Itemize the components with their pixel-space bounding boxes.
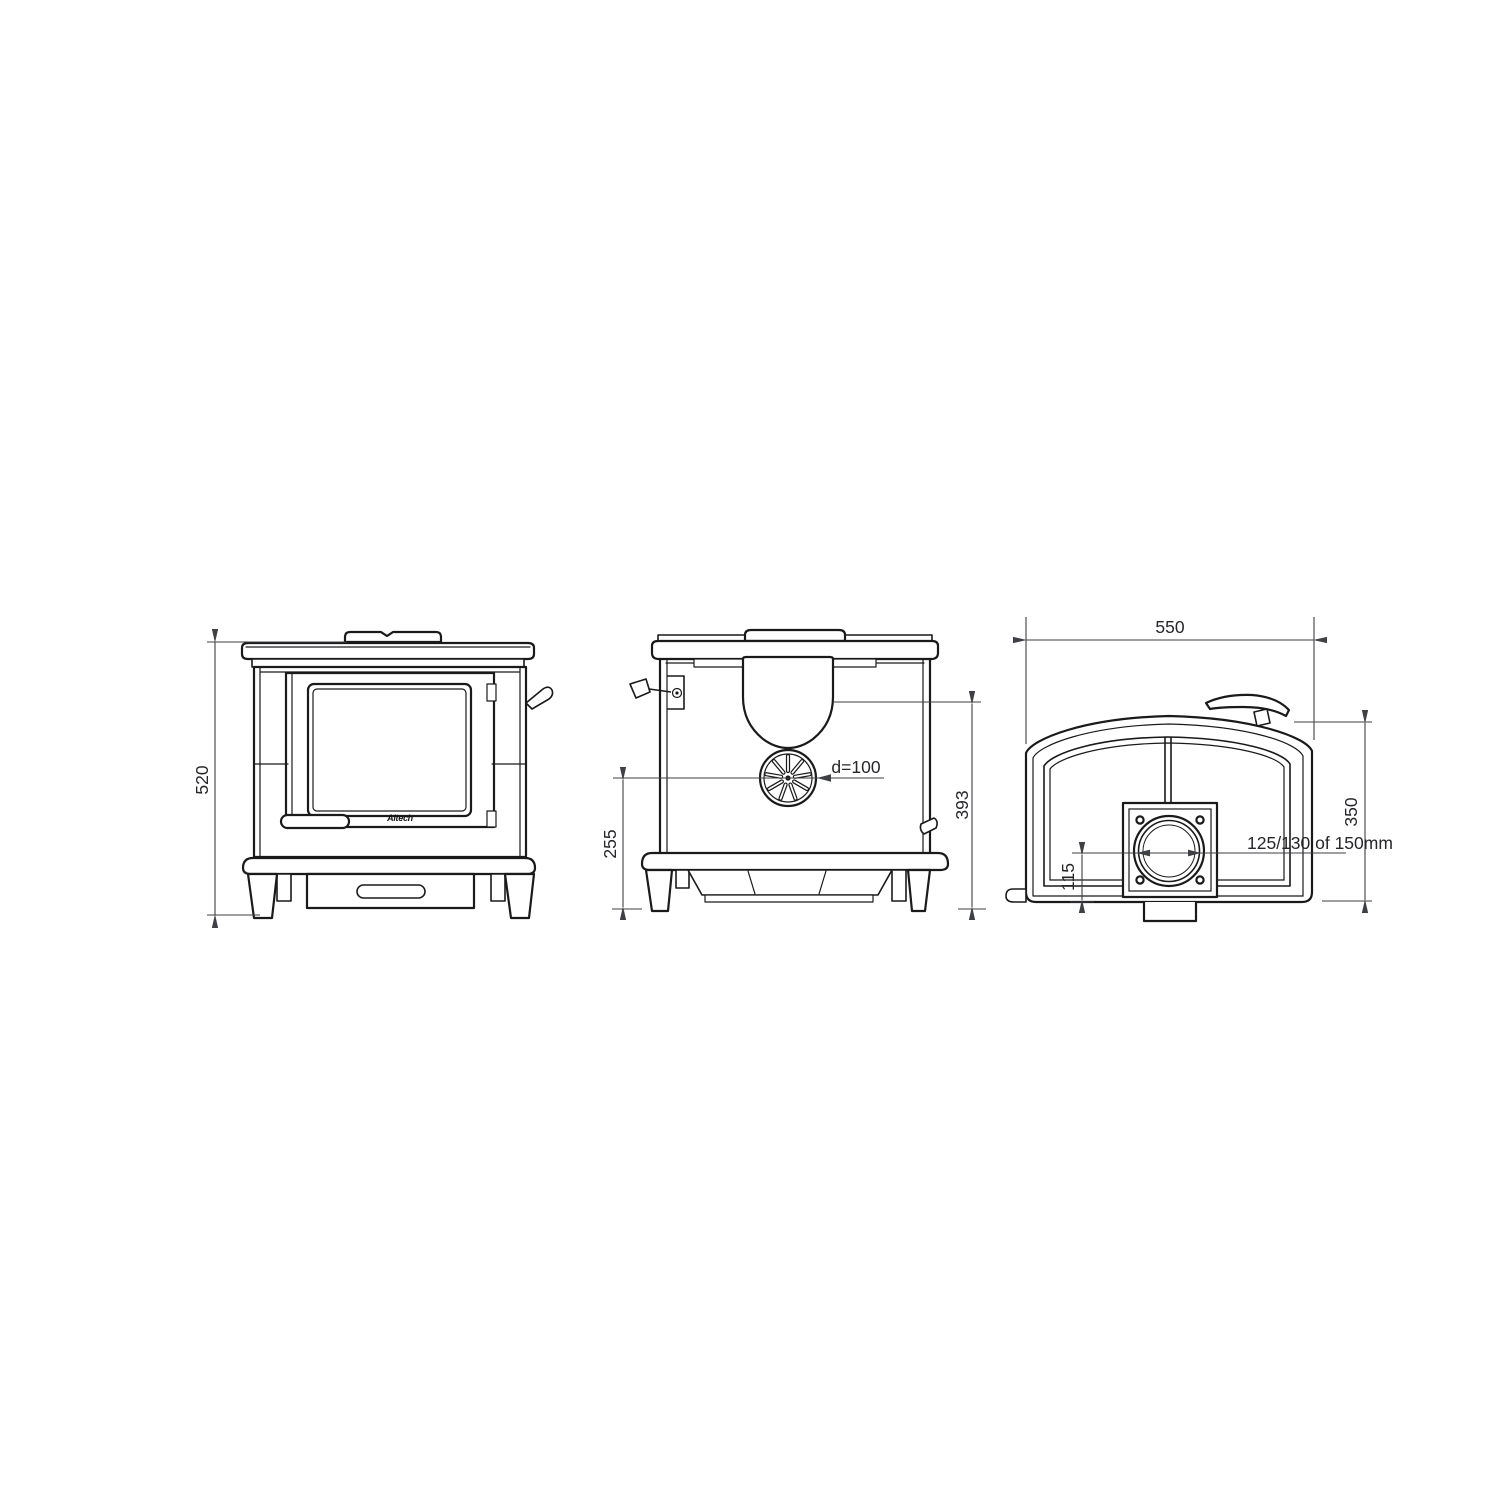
rear-foot	[1006, 889, 1026, 902]
air-control-knob	[526, 687, 553, 709]
dim-255: 255	[600, 780, 642, 909]
top-cap	[745, 630, 845, 641]
baffle-bell-chamber	[743, 657, 833, 748]
damper-handle-blade	[1206, 695, 1289, 716]
dim-label-550: 550	[1155, 617, 1184, 637]
door-hinge-bottom	[487, 811, 496, 827]
bolt-hole-tr	[1196, 816, 1203, 823]
bolt-hole-br	[1196, 876, 1203, 883]
leg-bracket-right	[491, 874, 505, 901]
leg-tab-right	[892, 870, 906, 901]
dim-label-255: 255	[600, 829, 620, 858]
air-lever-blade	[630, 679, 650, 698]
stove-leg-left	[248, 874, 277, 918]
dim-label-115: 115	[1058, 863, 1078, 891]
top-cap	[345, 632, 441, 642]
door-handle	[281, 815, 349, 828]
leg-rear-right	[908, 870, 930, 911]
base-plate	[642, 853, 948, 870]
top-plate-skirt	[252, 659, 524, 667]
dim-label-520: 520	[192, 765, 212, 794]
dim-label-350: 350	[1341, 797, 1361, 826]
flue-note-label: 125/130 of 150mm	[1247, 833, 1393, 853]
leg-tab-left	[676, 870, 689, 888]
fan-diameter-arrow	[817, 774, 831, 781]
leg-front-left	[646, 870, 672, 911]
dim-fan-centerline: d=100	[613, 757, 884, 782]
dim-label-d100: d=100	[831, 757, 880, 777]
ash-drawer-handle	[357, 885, 425, 898]
top-plate	[242, 643, 534, 659]
rear-view: 550 350 125/130 of 150mm 115	[1006, 617, 1393, 921]
door-hinge-top	[487, 684, 496, 701]
damper-handle-mount	[1254, 709, 1270, 726]
base-plate	[243, 858, 535, 874]
stove-drawing-svg: Altech 520	[0, 0, 1498, 1498]
bolt-hole-bl	[1136, 876, 1143, 883]
brand-logo: Altech	[386, 813, 414, 823]
lever-pivot-dot	[675, 691, 678, 694]
ash-pan-housing	[688, 870, 892, 895]
bottom-spigot	[1144, 902, 1196, 921]
ash-pan-base	[705, 895, 873, 902]
front-view: Altech 520	[192, 632, 553, 918]
dim-label-393: 393	[952, 790, 972, 819]
stove-leg-right	[505, 874, 534, 918]
leg-bracket-left	[277, 874, 291, 901]
technical-drawing-canvas: Altech 520	[0, 0, 1498, 1498]
bolt-hole-tl	[1136, 816, 1143, 823]
side-view: d=100 255 393	[600, 630, 986, 911]
